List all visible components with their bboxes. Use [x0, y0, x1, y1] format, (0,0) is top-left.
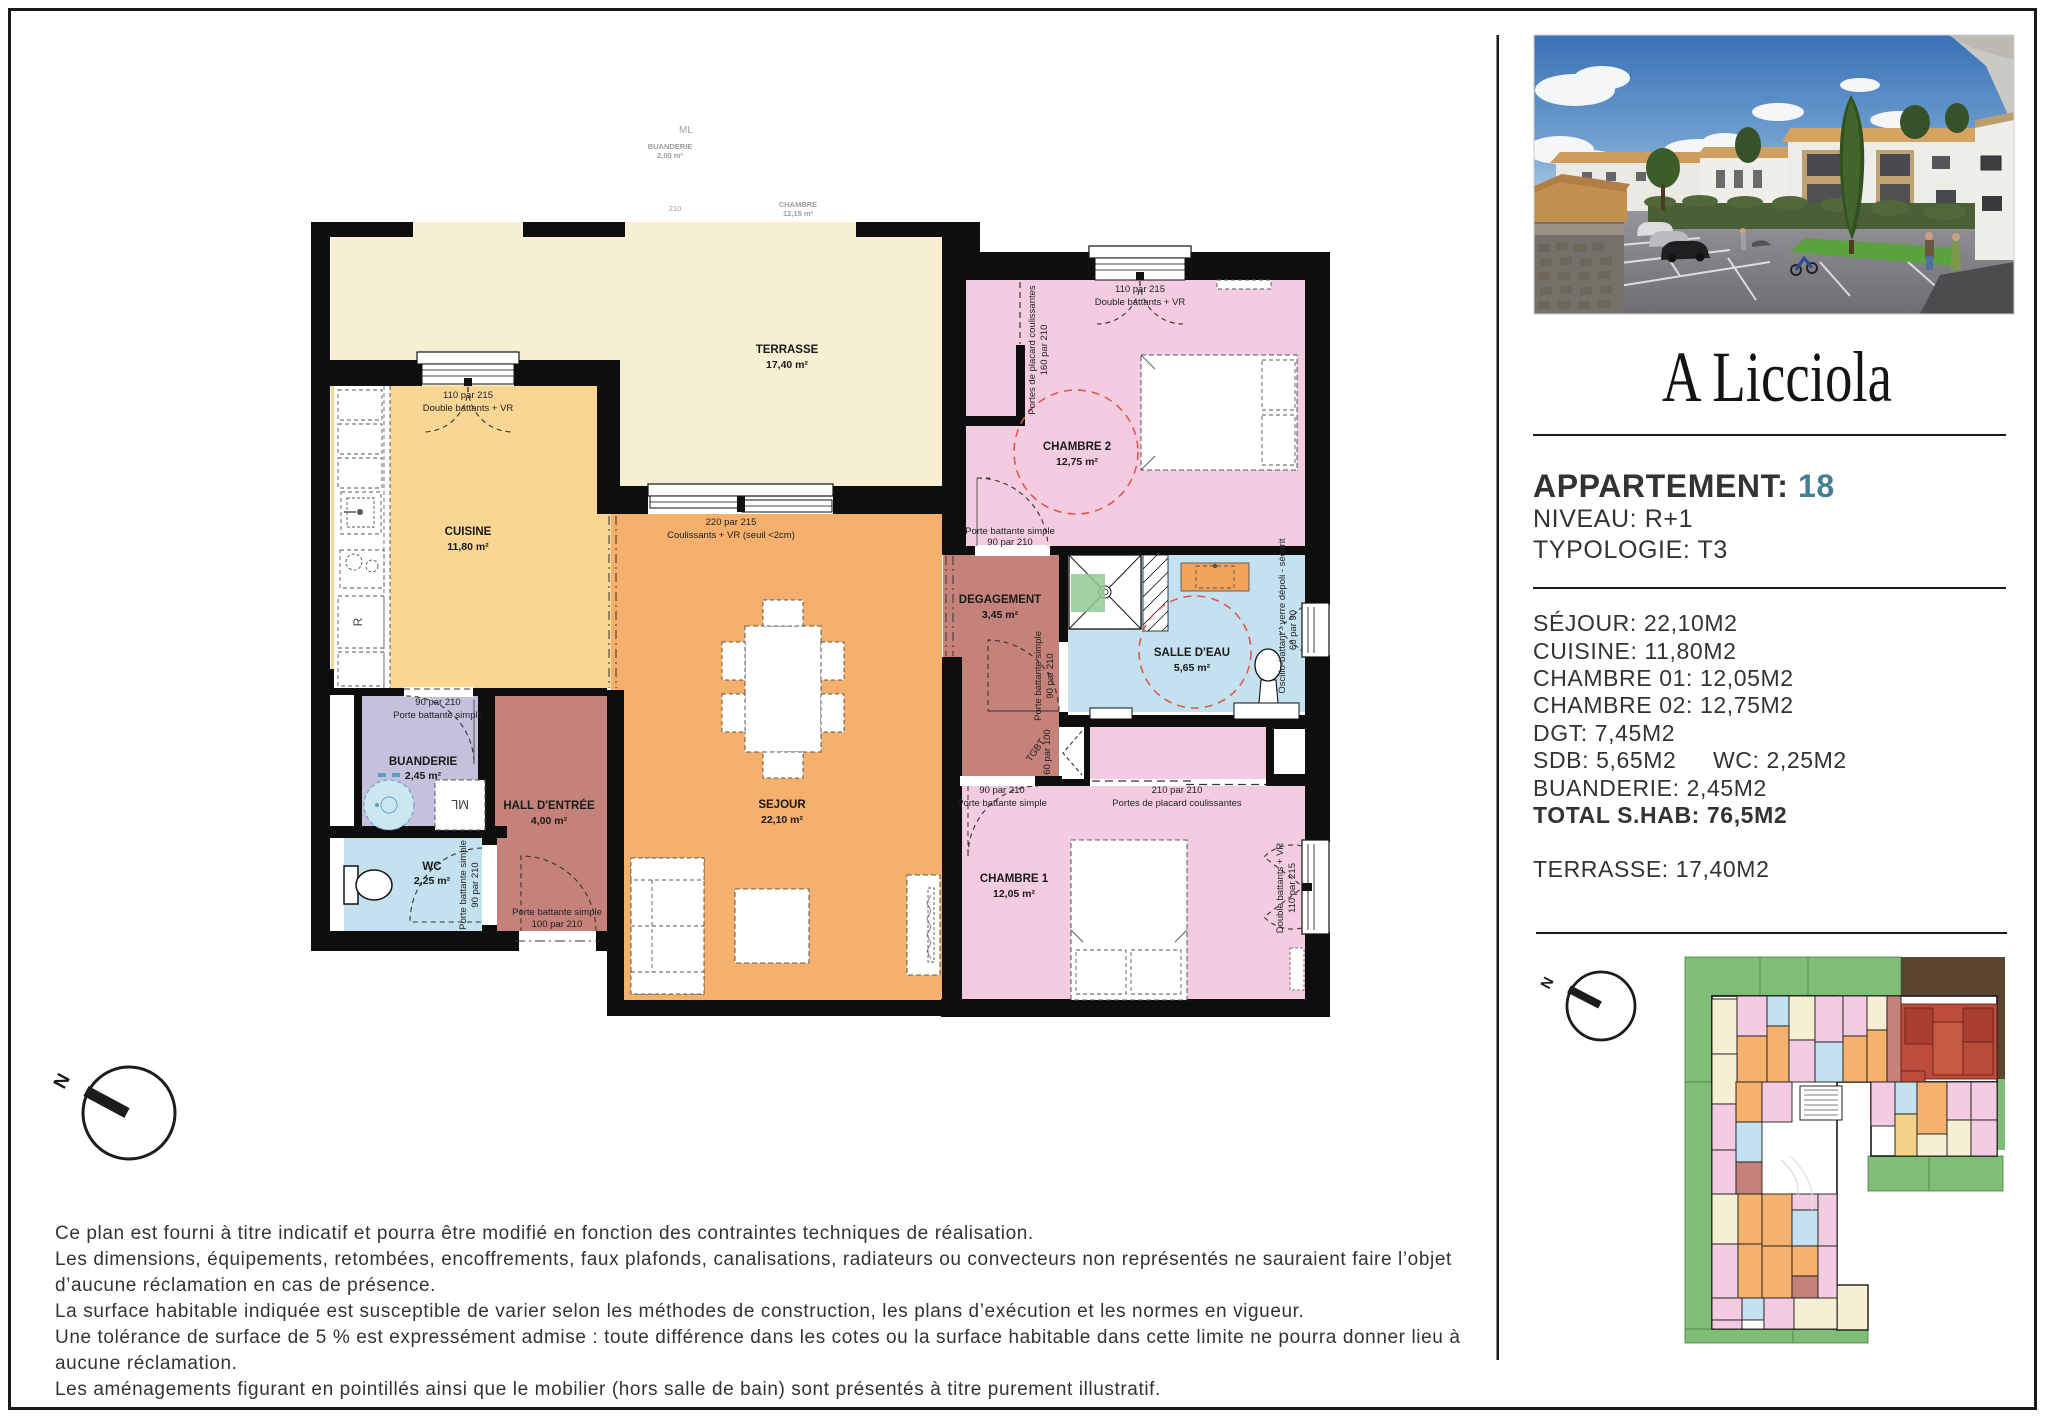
svg-text:160 par 210: 160 par 210 — [1039, 325, 1050, 376]
svg-text:12,05 m²: 12,05 m² — [993, 888, 1036, 900]
svg-text:d’aucune réclamation en cas de: d’aucune réclamation en cas de présence. — [55, 1275, 436, 1296]
svg-text:A Licciola: A Licciola — [1662, 337, 1892, 417]
svg-text:2,45 m²: 2,45 m² — [405, 770, 442, 782]
svg-text:BUANDERIE: BUANDERIE — [389, 756, 458, 768]
svg-text:ML: ML — [679, 125, 693, 136]
svg-text:210: 210 — [669, 204, 682, 213]
svg-text:90 par 210: 90 par 210 — [987, 537, 1032, 548]
svg-text:WC: 2,25M2: WC: 2,25M2 — [1713, 747, 1847, 773]
svg-text:Porte battante simple: Porte battante simple — [393, 710, 483, 721]
svg-text:WC: WC — [422, 861, 441, 873]
svg-text:SALLE D'EAU: SALLE D'EAU — [1154, 647, 1230, 659]
svg-text:HALL D'ENTRÉE: HALL D'ENTRÉE — [503, 799, 595, 812]
svg-text:Double battants + VR: Double battants + VR — [423, 403, 514, 414]
svg-text:aucune réclamation.: aucune réclamation. — [55, 1353, 238, 1374]
svg-text:12,75 m²: 12,75 m² — [1056, 456, 1099, 468]
svg-text:110 par 215: 110 par 215 — [1115, 284, 1165, 295]
svg-text:SÉJOUR: 22,10M2: SÉJOUR: 22,10M2 — [1533, 610, 1738, 636]
svg-text:DEGAGEMENT: DEGAGEMENT — [959, 594, 1041, 606]
svg-text:90 par 210: 90 par 210 — [415, 697, 460, 708]
svg-text:ML: ML — [451, 797, 469, 812]
svg-text:CHAMBRE: CHAMBRE — [779, 200, 817, 209]
svg-text:17,40 m²: 17,40 m² — [766, 359, 809, 371]
svg-text:11,80 m²: 11,80 m² — [447, 541, 489, 553]
svg-text:2,00 m²: 2,00 m² — [657, 151, 683, 160]
svg-text:Les aménagements figurant en p: Les aménagements figurant en pointillés … — [55, 1379, 1161, 1400]
svg-text:220 par 215: 220 par 215 — [706, 517, 757, 528]
svg-text:90 par 210: 90 par 210 — [1045, 653, 1056, 698]
svg-text:CUISINE: 11,80M2: CUISINE: 11,80M2 — [1533, 638, 1736, 664]
svg-text:CUISINE: CUISINE — [445, 526, 492, 538]
svg-text:2,25 m²: 2,25 m² — [414, 875, 451, 887]
svg-text:BUANDERIE: 2,45M2: BUANDERIE: 2,45M2 — [1533, 775, 1767, 801]
svg-text:210 par 210: 210 par 210 — [1152, 785, 1203, 796]
svg-text:La surface habitable indiquée: La surface habitable indiquée est suscep… — [55, 1301, 1304, 1322]
svg-text:Portes de placard coulissantes: Portes de placard coulissantes — [1027, 285, 1038, 415]
svg-text:CHAMBRE 1: CHAMBRE 1 — [980, 873, 1049, 885]
svg-text:APPARTEMENT: 18: APPARTEMENT: 18 — [1533, 468, 1835, 504]
svg-text:SDB: 5,65M2: SDB: 5,65M2 — [1533, 747, 1676, 773]
svg-text:Porte battante simple: Porte battante simple — [458, 840, 469, 930]
svg-text:TYPOLOGIE: T3: TYPOLOGIE: T3 — [1533, 536, 1728, 564]
svg-text:Une tolérance de surface de 5: Une tolérance de surface de 5 % est expr… — [55, 1327, 1460, 1348]
svg-text:Portes de placard coulissantes: Portes de placard coulissantes — [1112, 798, 1242, 809]
svg-text:CHAMBRE 01: 12,05M2: CHAMBRE 01: 12,05M2 — [1533, 665, 1794, 691]
svg-text:CHAMBRE 2: CHAMBRE 2 — [1043, 441, 1111, 453]
svg-text:Coulissants + VR (seuil <2cm): Coulissants + VR (seuil <2cm) — [667, 530, 795, 541]
svg-text:CHAMBRE 02: 12,75M2: CHAMBRE 02: 12,75M2 — [1533, 692, 1794, 718]
svg-text:Porte battante simple: Porte battante simple — [965, 526, 1055, 537]
svg-text:22,10 m²: 22,10 m² — [761, 814, 804, 826]
svg-text:Double battants + VR: Double battants + VR — [1275, 843, 1286, 934]
svg-text:100 par 210: 100 par 210 — [532, 919, 583, 930]
svg-text:Double battants + VR: Double battants + VR — [1095, 297, 1186, 308]
svg-text:Les dimensions, équipements, r: Les dimensions, équipements, retombées, … — [55, 1249, 1452, 1270]
svg-text:TERRASSE: TERRASSE — [756, 344, 819, 356]
svg-text:110 par 215: 110 par 215 — [1287, 863, 1298, 913]
svg-text:110 par 215: 110 par 215 — [443, 390, 493, 401]
svg-text:TOTAL S.HAB: 76,5M2: TOTAL S.HAB: 76,5M2 — [1533, 802, 1787, 828]
svg-text:60 par 100: 60 par 100 — [1042, 729, 1053, 774]
svg-text:60 par 90: 60 par 90 — [1288, 610, 1299, 650]
svg-text:5,65 m²: 5,65 m² — [1174, 662, 1211, 674]
svg-text:12,15 m²: 12,15 m² — [783, 209, 814, 218]
svg-text:NIVEAU: R+1: NIVEAU: R+1 — [1533, 505, 1693, 533]
svg-text:SEJOUR: SEJOUR — [758, 799, 806, 811]
svg-text:Oscillo-battant - verre dépoli: Oscillo-battant - verre dépoli - sécurit — [1277, 538, 1288, 694]
svg-text:DGT: 7,45M2: DGT: 7,45M2 — [1533, 720, 1675, 746]
svg-text:Ce plan est fourni à titre ind: Ce plan est fourni à titre indicatif et … — [55, 1223, 1034, 1244]
svg-text:BUANDERIE: BUANDERIE — [648, 142, 693, 151]
svg-text:90 par 210: 90 par 210 — [470, 862, 481, 907]
svg-text:4,00 m²: 4,00 m² — [531, 815, 568, 827]
svg-text:R: R — [351, 617, 365, 626]
svg-text:Porte battante simple: Porte battante simple — [957, 798, 1047, 809]
svg-text:TERRASSE: 17,40M2: TERRASSE: 17,40M2 — [1533, 856, 1769, 882]
svg-text:Porte battante simple: Porte battante simple — [1033, 631, 1044, 721]
svg-text:Porte battante simple: Porte battante simple — [512, 907, 602, 918]
svg-text:3,45 m²: 3,45 m² — [982, 609, 1019, 621]
svg-text:90 par 210: 90 par 210 — [979, 785, 1024, 796]
